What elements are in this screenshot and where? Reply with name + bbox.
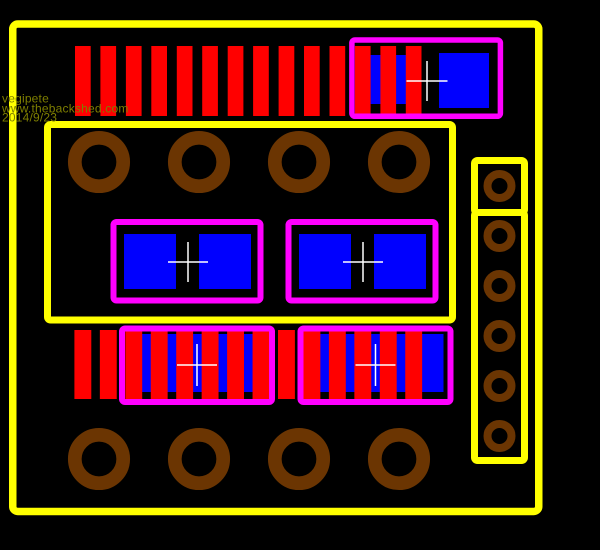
svg-text:2014/9/23: 2014/9/23 bbox=[2, 111, 57, 125]
